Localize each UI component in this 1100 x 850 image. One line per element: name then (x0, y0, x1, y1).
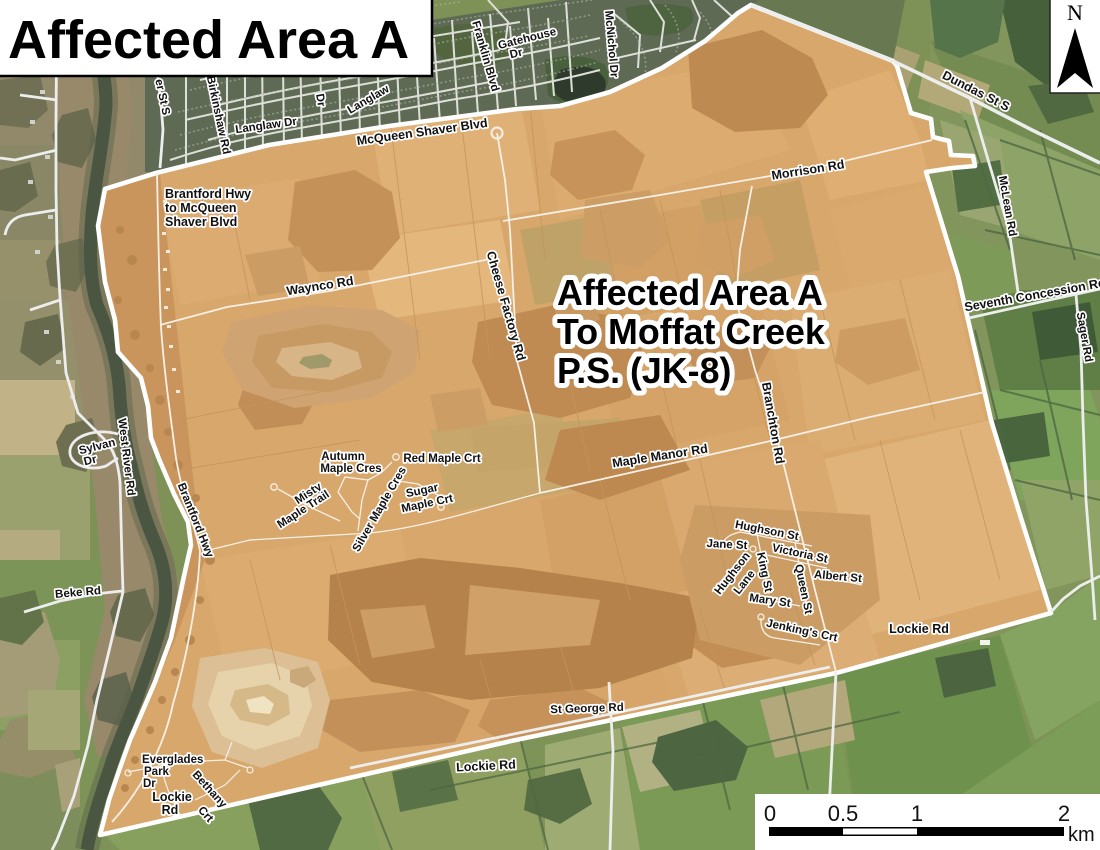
svg-text:2: 2 (1058, 801, 1070, 826)
svg-text:Shaver Blvd: Shaver Blvd (165, 215, 237, 229)
svg-text:Brantford Hwy: Brantford Hwy (165, 187, 251, 201)
svg-text:to McQueen: to McQueen (165, 201, 237, 215)
svg-text:St George Rd: St George Rd (550, 702, 624, 717)
svg-text:Jane St: Jane St (706, 538, 748, 552)
svg-text:Lockie Rd: Lockie Rd (889, 622, 949, 636)
svg-text:Dr: Dr (313, 93, 327, 108)
svg-text:Affected Area A: Affected Area A (8, 10, 409, 70)
svg-text:Maple Cres: Maple Cres (320, 463, 381, 475)
svg-text:Affected Area A: Affected Area A (557, 273, 823, 313)
svg-text:Park: Park (144, 766, 170, 778)
svg-text:Autumn: Autumn (321, 451, 364, 463)
svg-text:P.S. (JK-8): P.S. (JK-8) (557, 351, 731, 391)
svg-text:N: N (1067, 0, 1083, 25)
svg-text:0: 0 (764, 801, 776, 826)
svg-text:Rd: Rd (162, 803, 179, 817)
svg-text:To Moffat Creek: To Moffat Creek (557, 312, 825, 352)
svg-text:Dr: Dr (143, 778, 156, 790)
svg-text:km: km (1068, 824, 1095, 846)
svg-text:Red Maple Crt: Red Maple Crt (403, 453, 480, 465)
svg-text:Everglades: Everglades (142, 754, 203, 766)
svg-text:0.5: 0.5 (828, 801, 859, 826)
svg-text:1: 1 (911, 801, 923, 826)
svg-text:Lockie: Lockie (152, 790, 192, 804)
